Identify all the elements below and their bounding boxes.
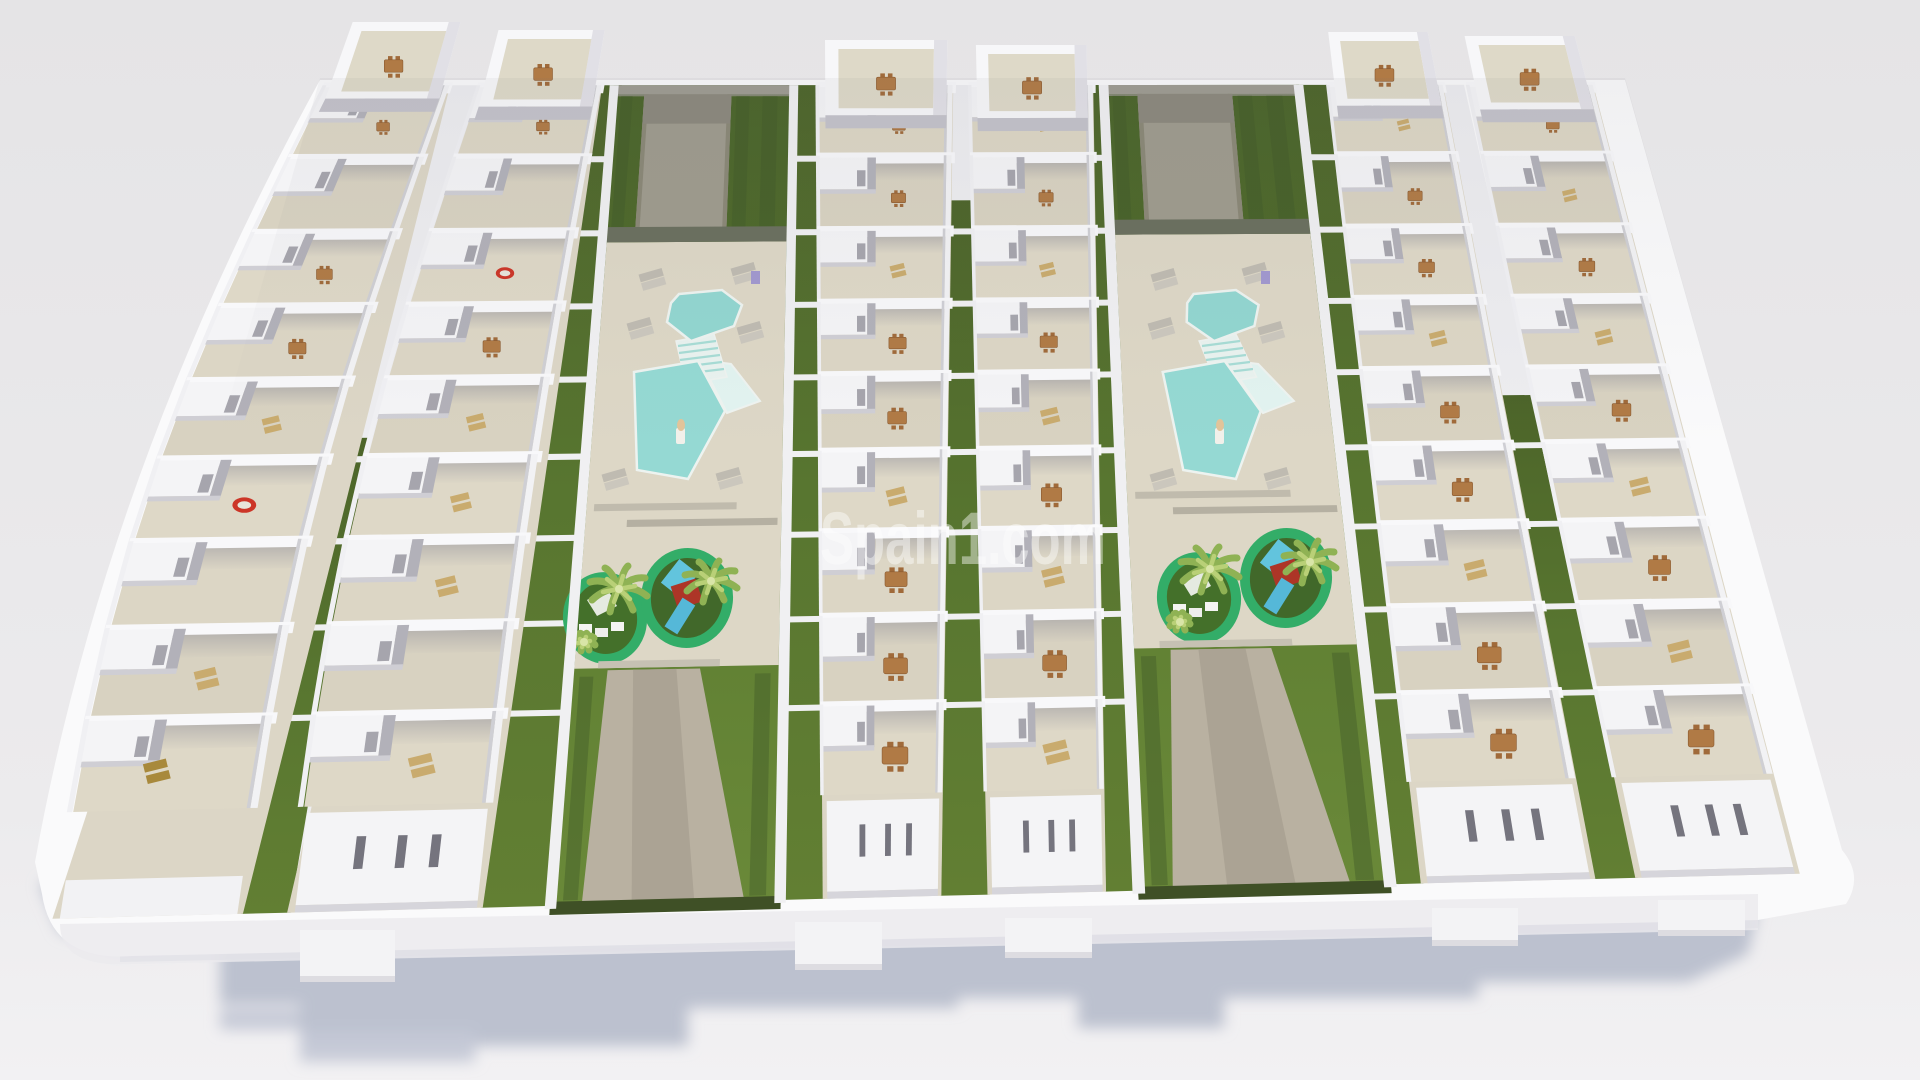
- svg-text:Spain1.com: Spain1.com: [820, 497, 1106, 580]
